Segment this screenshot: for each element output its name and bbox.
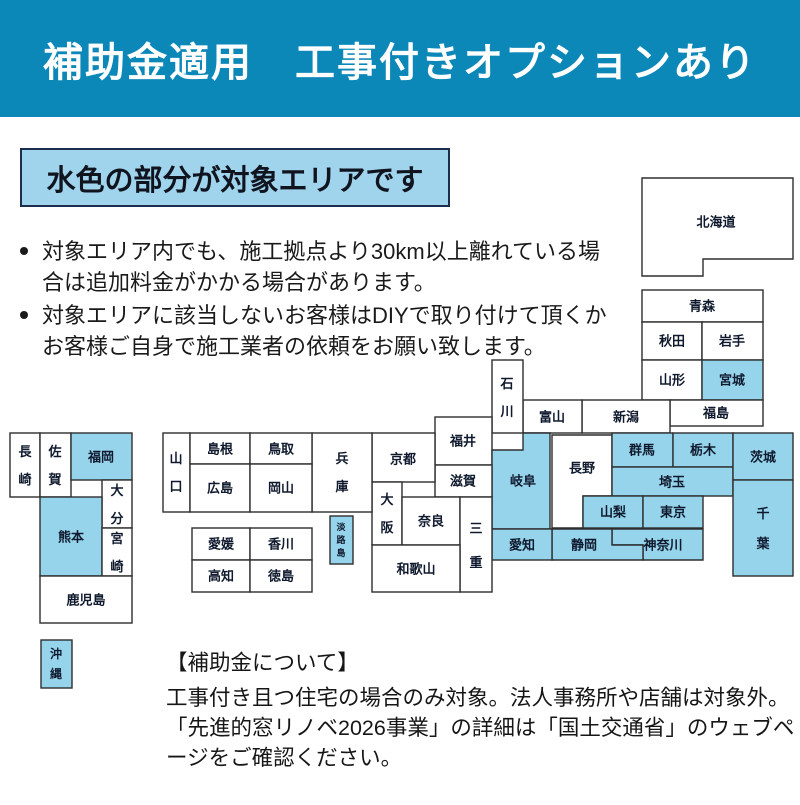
prefecture-label: 千葉 bbox=[755, 506, 770, 551]
prefecture-cell: 香川 bbox=[250, 528, 312, 560]
prefecture-cell: 新潟 bbox=[582, 400, 670, 433]
prefecture-label: 群馬 bbox=[629, 443, 655, 458]
subsidy-line: 「先進的窓リノベ2026事業」の詳細は「国土交通省」のウェブページをご確認くださ… bbox=[166, 713, 800, 773]
header-banner: 補助金適用 工事付きオプションあり bbox=[0, 0, 800, 117]
banner-title: 補助金適用 工事付きオプションあり bbox=[43, 30, 757, 88]
prefecture-cell: 愛媛 bbox=[192, 528, 250, 560]
prefecture-label: 奈良 bbox=[417, 514, 444, 529]
prefecture-cell: 栃木 bbox=[673, 433, 733, 467]
prefecture-label: 福井 bbox=[449, 434, 476, 449]
prefecture-cell: 佐賀 bbox=[40, 433, 71, 497]
prefecture-label: 沖縄 bbox=[50, 646, 62, 681]
prefecture-label: 香川 bbox=[267, 537, 294, 552]
prefecture-cell: 岩手 bbox=[702, 322, 763, 360]
prefecture-cell: 奈良 bbox=[402, 497, 460, 545]
prefecture-label: 愛知 bbox=[509, 538, 535, 553]
prefecture-label: 静岡 bbox=[571, 538, 597, 553]
prefecture-label: 山形 bbox=[659, 373, 685, 388]
prefecture-label: 高知 bbox=[208, 569, 234, 584]
prefecture-cell: 富山 bbox=[523, 400, 582, 433]
prefecture-cell: 秋田 bbox=[642, 322, 702, 360]
prefecture-cell: 岐阜 bbox=[492, 433, 550, 529]
prefecture-label: 宮崎 bbox=[110, 531, 123, 574]
note-text: 対象エリア内でも、施工拠点より30km以上離れている場合は追加料金がかかる場合が… bbox=[42, 236, 614, 298]
prefecture-label: 山梨 bbox=[600, 505, 627, 520]
prefecture-cell: 京都 bbox=[372, 433, 435, 482]
prefecture-label: 福岡 bbox=[87, 450, 114, 465]
prefecture-cell: 和歌山 bbox=[372, 545, 460, 592]
prefecture-cell: 山形 bbox=[642, 360, 702, 400]
prefecture-label: 岡山 bbox=[268, 481, 294, 496]
prefecture-label: 神奈川 bbox=[643, 538, 682, 553]
prefecture-cell: 岡山 bbox=[250, 464, 312, 512]
prefecture-cell: 群馬 bbox=[612, 433, 673, 467]
prefecture-cell: 淡路島 bbox=[330, 516, 353, 564]
prefecture-cell: 高知 bbox=[192, 560, 250, 592]
prefecture-label: 北海道 bbox=[696, 215, 735, 230]
prefecture-cell: 千葉 bbox=[733, 480, 793, 576]
prefecture-cell: 沖縄 bbox=[41, 640, 72, 688]
prefecture-label: 青森 bbox=[689, 299, 716, 314]
prefecture-cell: 長野 bbox=[552, 435, 612, 528]
prefecture-cell: 静岡 bbox=[552, 529, 643, 560]
prefecture-cell: 熊本 bbox=[40, 497, 102, 576]
subsidy-info: 【補助金について】 工事付き且つ住宅の場合のみ対象。法人事務所や店舗は対象外。 … bbox=[166, 648, 800, 773]
prefecture-cell: 徳島 bbox=[250, 560, 312, 592]
prefecture-cell: 茨城 bbox=[733, 433, 793, 480]
prefecture-label: 茨城 bbox=[750, 450, 776, 465]
prefecture-label: 秋田 bbox=[659, 334, 685, 349]
prefecture-label: 三重 bbox=[469, 521, 482, 570]
prefecture-cell: 兵庫 bbox=[312, 433, 372, 512]
prefecture-label: 愛媛 bbox=[208, 537, 235, 552]
prefecture-cell: 長崎 bbox=[10, 433, 40, 497]
note-text: 対象エリアに該当しないお客様はDIYで取り付けて頂くかお客様ご自身で施工業者の依… bbox=[42, 300, 614, 362]
prefecture-cell: 東京 bbox=[643, 496, 703, 528]
prefecture-label: 佐賀 bbox=[47, 444, 61, 487]
prefecture-label: 京都 bbox=[390, 452, 416, 467]
prefecture-cell: 宮崎 bbox=[102, 528, 132, 576]
prefecture-label: 徳島 bbox=[267, 569, 294, 584]
prefecture-label: 淡路島 bbox=[336, 522, 346, 558]
prefecture-cell: 鹿児島 bbox=[40, 576, 132, 623]
prefecture-label: 石川 bbox=[499, 376, 513, 419]
prefecture-cell: 福岡 bbox=[71, 433, 132, 480]
prefecture-cell: 宮城 bbox=[702, 360, 763, 400]
subsidy-line: 工事付き且つ住宅の場合のみ対象。法人事務所や店舗は対象外。 bbox=[166, 683, 800, 713]
prefecture-cell: 福井 bbox=[435, 417, 492, 465]
prefecture-cell: 大阪 bbox=[372, 482, 402, 545]
prefecture-cell: 三重 bbox=[460, 497, 492, 592]
prefecture-cell: 愛知 bbox=[492, 529, 552, 560]
prefecture-cell: 広島 bbox=[190, 464, 250, 512]
subsidy-heading: 【補助金について】 bbox=[166, 648, 800, 678]
prefecture-label: 広島 bbox=[207, 481, 233, 496]
prefecture-label: 島根 bbox=[207, 442, 234, 457]
prefecture-cell: 山口 bbox=[163, 433, 190, 512]
prefecture-label: 大分 bbox=[110, 483, 123, 526]
prefecture-label: 新潟 bbox=[613, 410, 639, 425]
prefecture-label: 岩手 bbox=[718, 334, 745, 349]
prefecture-cell: 島根 bbox=[190, 433, 250, 464]
prefecture-label: 兵庫 bbox=[335, 451, 348, 494]
prefecture-label: 福島 bbox=[702, 406, 729, 421]
prefecture-cell: 神奈川 bbox=[612, 529, 703, 560]
prefecture-label: 和歌山 bbox=[396, 562, 435, 577]
prefecture-cell: 鳥取 bbox=[250, 433, 312, 464]
note-item: 対象エリア内でも、施工拠点より30km以上離れている場合は追加料金がかかる場合が… bbox=[12, 236, 614, 298]
prefecture-label: 東京 bbox=[660, 505, 686, 520]
notes-list: 対象エリア内でも、施工拠点より30km以上離れている場合は追加料金がかかる場合が… bbox=[12, 236, 614, 364]
prefecture-cell: 青森 bbox=[642, 290, 763, 322]
prefecture-label: 宮城 bbox=[719, 373, 745, 388]
target-area-note-label: 水色の部分が対象エリアです bbox=[46, 157, 423, 199]
prefecture-label: 栃木 bbox=[690, 443, 717, 458]
prefecture-cell: 福島 bbox=[670, 400, 763, 426]
prefecture-cell: 山梨 bbox=[583, 496, 643, 528]
prefecture-label: 滋賀 bbox=[450, 474, 476, 489]
prefecture-label: 富山 bbox=[539, 410, 565, 425]
prefecture-label: 岐阜 bbox=[510, 474, 536, 489]
prefecture-label: 鳥取 bbox=[268, 442, 295, 457]
prefecture-label: 鹿児島 bbox=[66, 593, 105, 608]
prefecture-cell: 北海道 bbox=[642, 178, 793, 276]
note-item: 対象エリアに該当しないお客様はDIYで取り付けて頂くかお客様ご自身で施工業者の依… bbox=[12, 300, 614, 362]
prefecture-cell: 石川 bbox=[492, 360, 523, 433]
prefecture-label: 山口 bbox=[169, 451, 182, 494]
prefecture-label: 熊本 bbox=[58, 530, 84, 545]
target-area-note-box: 水色の部分が対象エリアです bbox=[20, 148, 450, 207]
prefecture-label: 埼玉 bbox=[659, 475, 685, 490]
prefecture-cell: 埼玉 bbox=[612, 467, 733, 496]
prefecture-cell: 滋賀 bbox=[435, 465, 492, 497]
prefecture-label: 大阪 bbox=[380, 492, 394, 535]
prefecture-label: 長崎 bbox=[18, 444, 32, 487]
prefecture-cell: 大分 bbox=[102, 480, 132, 528]
prefecture-label: 長野 bbox=[569, 461, 595, 476]
